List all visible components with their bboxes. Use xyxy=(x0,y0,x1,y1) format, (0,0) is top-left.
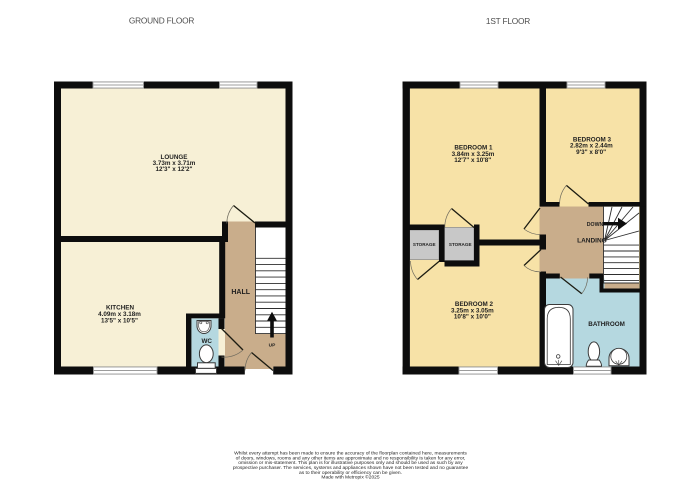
svg-text:BATHROOM: BATHROOM xyxy=(588,321,625,328)
svg-text:1ST FLOOR: 1ST FLOOR xyxy=(486,16,530,26)
svg-text:DOWN: DOWN xyxy=(587,222,604,228)
svg-text:12'7" x 10'8": 12'7" x 10'8" xyxy=(454,157,491,164)
svg-text:UP: UP xyxy=(269,343,276,349)
svg-text:STORAGE: STORAGE xyxy=(413,242,436,247)
svg-text:WC: WC xyxy=(201,338,212,345)
svg-text:10'8" x 10'0": 10'8" x 10'0" xyxy=(454,314,491,321)
svg-text:LANDING: LANDING xyxy=(577,237,607,244)
svg-text:STORAGE: STORAGE xyxy=(449,242,472,247)
svg-text:9'3" x 8'0": 9'3" x 8'0" xyxy=(576,149,606,156)
svg-text:12'3" x 12'2": 12'3" x 12'2" xyxy=(156,166,193,173)
svg-text:GROUND FLOOR: GROUND FLOOR xyxy=(129,16,195,26)
svg-text:13'5" x 10'5": 13'5" x 10'5" xyxy=(101,317,138,324)
svg-text:HALL: HALL xyxy=(231,289,250,296)
svg-text:Made with Metropix ©2025: Made with Metropix ©2025 xyxy=(321,474,380,481)
